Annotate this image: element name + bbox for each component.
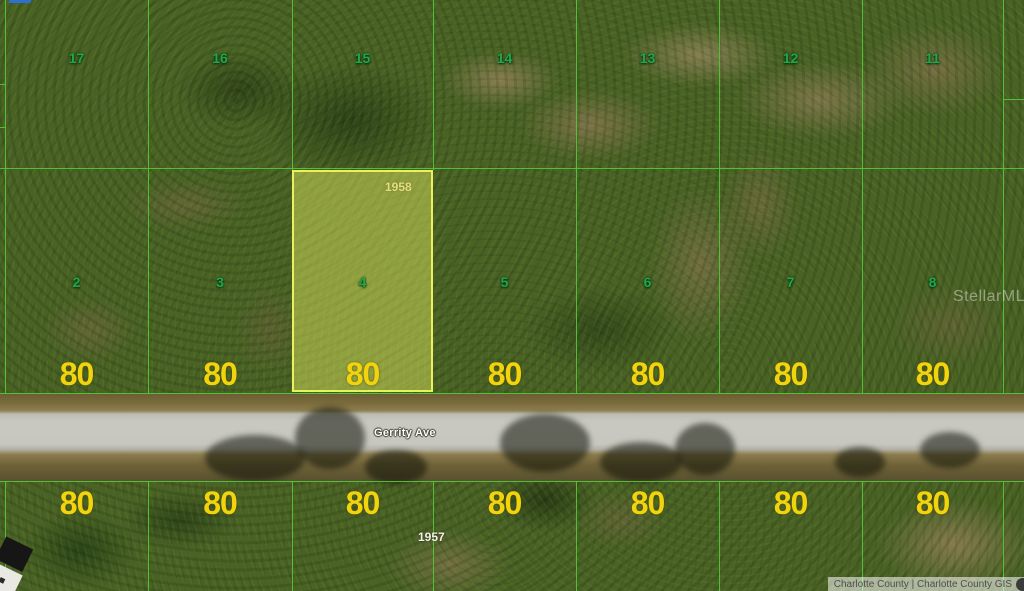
lot-number: 11 [862,50,1003,66]
frontage-width-label: 80 [719,487,862,519]
lot-number: 6 [576,274,719,290]
lot-number: 2 [5,274,148,290]
gis-logo-icon [1016,578,1024,591]
frontage-width-label: 80 [433,487,576,519]
frontage-width-label: 80 [5,487,148,519]
tree-shadow [920,432,980,468]
tree-shadow [675,423,735,475]
frontage-width-label: 80 [5,358,148,390]
lot-parcel: 8 80 [862,168,1003,393]
frontage-width-label: 80 [576,358,719,390]
lot-parcel: 80 [862,481,1003,591]
lot-parcel: 16 [148,0,292,168]
image-artifact [8,0,31,3]
lot-number: 4 [292,274,433,290]
frontage-width-label: 80 [148,358,292,390]
lot-parcel: 80 [5,481,148,591]
stellar-mls-watermark: StellarMLS [953,288,1024,306]
frontage-width-label: 80 [292,358,433,390]
lot-number: 16 [148,50,292,66]
tree-shadow [365,450,427,484]
lot-parcel: 17 [5,0,148,168]
lot-parcel: 14 [433,0,576,168]
lot-number: 17 [5,50,148,66]
tree-shadow [600,442,682,482]
lot-number: 5 [433,274,576,290]
lot-parcel: 15 [292,0,433,168]
attribution-text: Charlotte County | Charlotte County GIS [834,579,1012,590]
map-attribution-bar: Charlotte County | Charlotte County GIS [828,577,1024,591]
lot-number: 15 [292,50,433,66]
lot-number: 12 [719,50,862,66]
lot-number: 3 [148,274,292,290]
lot-parcel: 2 80 [5,168,148,393]
aerial-parcel-map: 17 16 15 14 13 12 11 2 80 3 80 4 80 5 80… [0,0,1024,591]
tree-shadow [205,435,305,481]
parcel-line-stub [1003,99,1024,100]
lot-parcel: 80 [433,481,576,591]
lot-parcel: 6 80 [576,168,719,393]
tree-shadow [835,447,885,477]
parcel-line-vertical [1003,0,1004,393]
parcel-line-vertical [1003,481,1004,591]
block-id-1957: 1957 [418,531,445,543]
frontage-width-label: 80 [148,487,292,519]
frontage-width-label: 80 [719,358,862,390]
frontage-width-label: 80 [433,358,576,390]
lot-number: 7 [719,274,862,290]
frontage-width-label: 80 [576,487,719,519]
lot-number: 14 [433,50,576,66]
lot-parcel: 80 [719,481,862,591]
lot-parcel: 80 [148,481,292,591]
lot-parcel: 5 80 [433,168,576,393]
tree-shadow [500,414,590,472]
frontage-width-label: 80 [862,487,1003,519]
lot-number: 13 [576,50,719,66]
parcel-line-horizontal [0,393,1024,394]
road-name-label: Gerrity Ave [374,427,436,439]
lot-parcel: 80 [292,481,433,591]
lot-parcel: 3 80 [148,168,292,393]
lot-parcel: 13 [576,0,719,168]
frontage-width-label: 80 [862,358,1003,390]
lot-parcel: 12 [719,0,862,168]
lot-parcel: 7 80 [719,168,862,393]
lot-parcel: 4 80 [292,168,433,393]
frontage-width-label: 80 [292,487,433,519]
tree-shadow [295,407,365,469]
block-id-1958: 1958 [385,181,412,193]
lot-parcel: 11 [862,0,1003,168]
lot-parcel: 80 [576,481,719,591]
